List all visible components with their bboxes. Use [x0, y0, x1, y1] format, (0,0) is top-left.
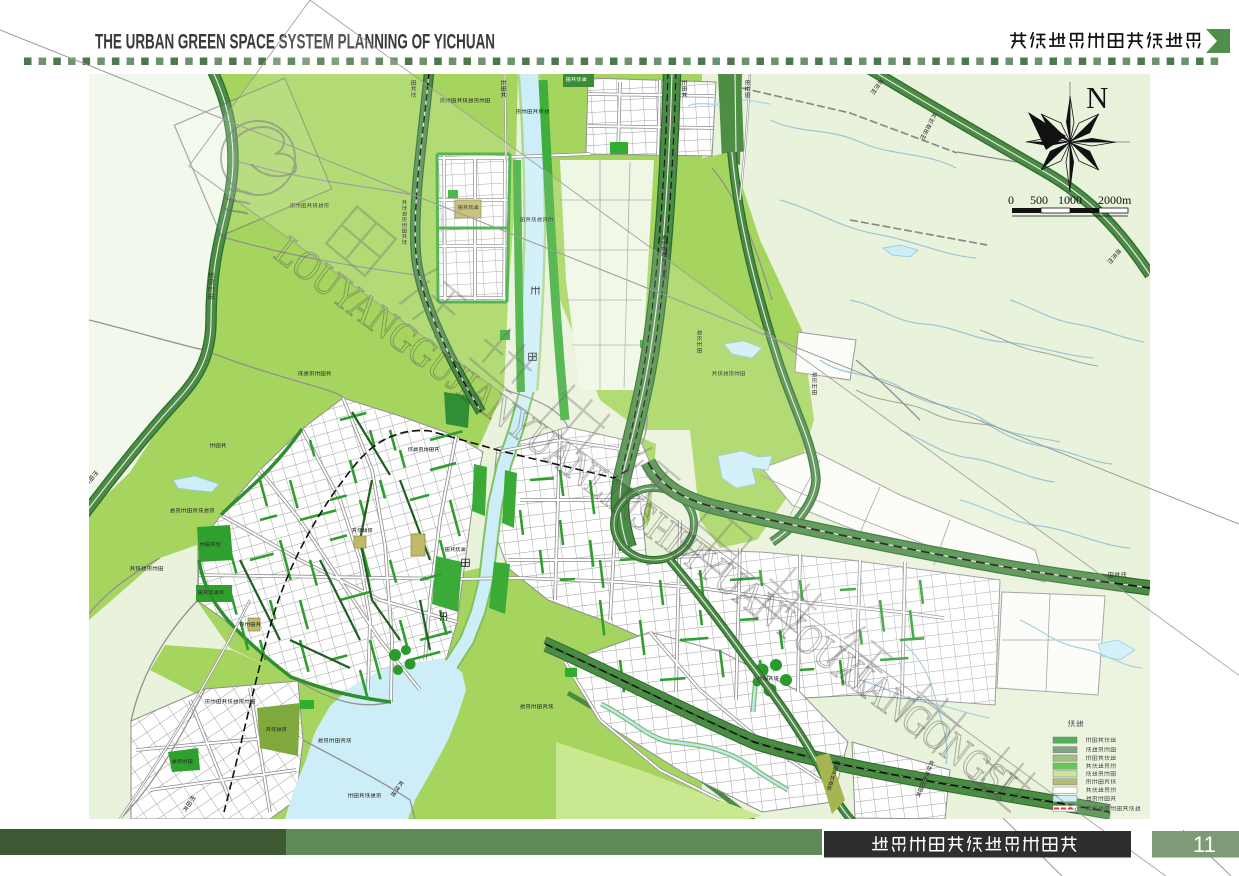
- svg-text:2000m: 2000m: [1098, 193, 1132, 207]
- svg-text:N: N: [1086, 80, 1108, 115]
- svg-text:1000: 1000: [1058, 193, 1082, 207]
- svg-text:0: 0: [1008, 193, 1014, 207]
- svg-text:500: 500: [1030, 193, 1048, 207]
- svg-text:11: 11: [1193, 832, 1216, 857]
